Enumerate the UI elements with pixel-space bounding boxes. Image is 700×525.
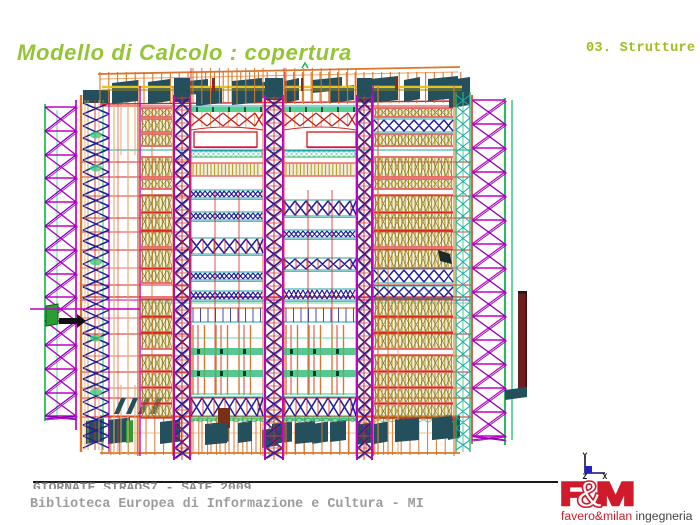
svg-text:favero&milan ingegneria: favero&milan ingegneria (561, 509, 693, 523)
svg-text:Y: Y (583, 452, 588, 461)
